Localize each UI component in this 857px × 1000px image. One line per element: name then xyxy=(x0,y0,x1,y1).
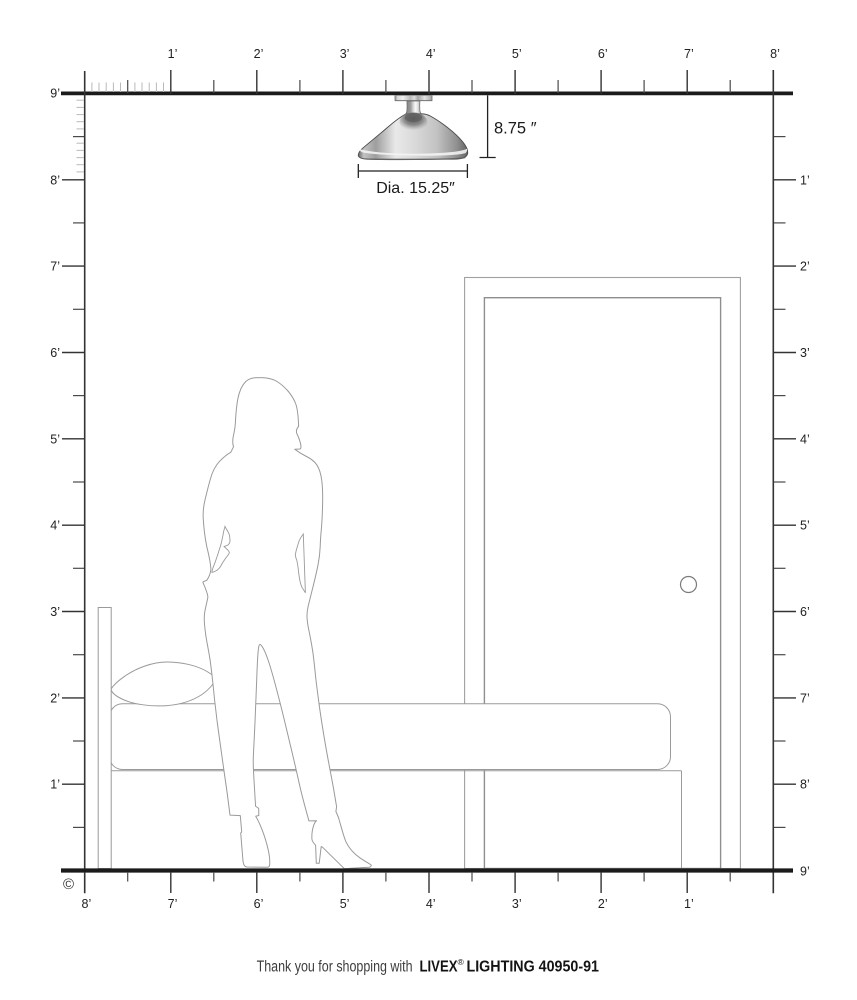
svg-text:4’: 4’ xyxy=(800,432,810,446)
svg-text:2’: 2’ xyxy=(800,260,810,274)
svg-text:6’: 6’ xyxy=(800,605,810,619)
svg-text:1’: 1’ xyxy=(684,897,694,911)
svg-text:5’: 5’ xyxy=(50,432,60,446)
svg-text:2’: 2’ xyxy=(50,691,60,705)
svg-text:8’: 8’ xyxy=(770,47,780,61)
svg-text:8’: 8’ xyxy=(800,778,810,792)
svg-text:4’: 4’ xyxy=(50,519,60,533)
svg-text:1’: 1’ xyxy=(50,778,60,792)
svg-text:3’: 3’ xyxy=(800,346,810,360)
svg-text:Thank you for shopping with: Thank you for shopping with xyxy=(257,959,413,976)
svg-text:8.75 ″: 8.75 ″ xyxy=(494,120,537,138)
svg-text:LIVEX: LIVEX xyxy=(420,959,459,976)
svg-text:3’: 3’ xyxy=(512,897,522,911)
svg-text:2’: 2’ xyxy=(598,897,608,911)
svg-text:LIGHTING 40950-91: LIGHTING 40950-91 xyxy=(467,959,600,976)
svg-text:6’: 6’ xyxy=(598,47,608,61)
svg-text:6’: 6’ xyxy=(50,346,60,360)
svg-text:4’: 4’ xyxy=(426,47,436,61)
svg-text:5’: 5’ xyxy=(512,47,522,61)
svg-text:©: © xyxy=(63,876,74,893)
svg-text:7’: 7’ xyxy=(50,260,60,274)
svg-text:3’: 3’ xyxy=(50,605,60,619)
svg-text:9’: 9’ xyxy=(50,87,60,101)
svg-text:3’: 3’ xyxy=(340,47,350,61)
svg-text:1’: 1’ xyxy=(800,173,810,187)
svg-text:®: ® xyxy=(458,957,465,967)
svg-text:5’: 5’ xyxy=(800,519,810,533)
svg-text:7’: 7’ xyxy=(168,897,178,911)
svg-text:6’: 6’ xyxy=(254,897,264,911)
svg-text:4’: 4’ xyxy=(426,897,436,911)
svg-text:7’: 7’ xyxy=(800,691,810,705)
svg-text:9’: 9’ xyxy=(800,865,810,879)
svg-text:2’: 2’ xyxy=(254,47,264,61)
svg-text:1’: 1’ xyxy=(168,47,178,61)
svg-text:7’: 7’ xyxy=(684,47,694,61)
svg-text:5’: 5’ xyxy=(340,897,350,911)
svg-text:8’: 8’ xyxy=(82,897,92,911)
svg-text:8’: 8’ xyxy=(50,173,60,187)
svg-text:Dia. 15.25″: Dia. 15.25″ xyxy=(376,180,455,197)
